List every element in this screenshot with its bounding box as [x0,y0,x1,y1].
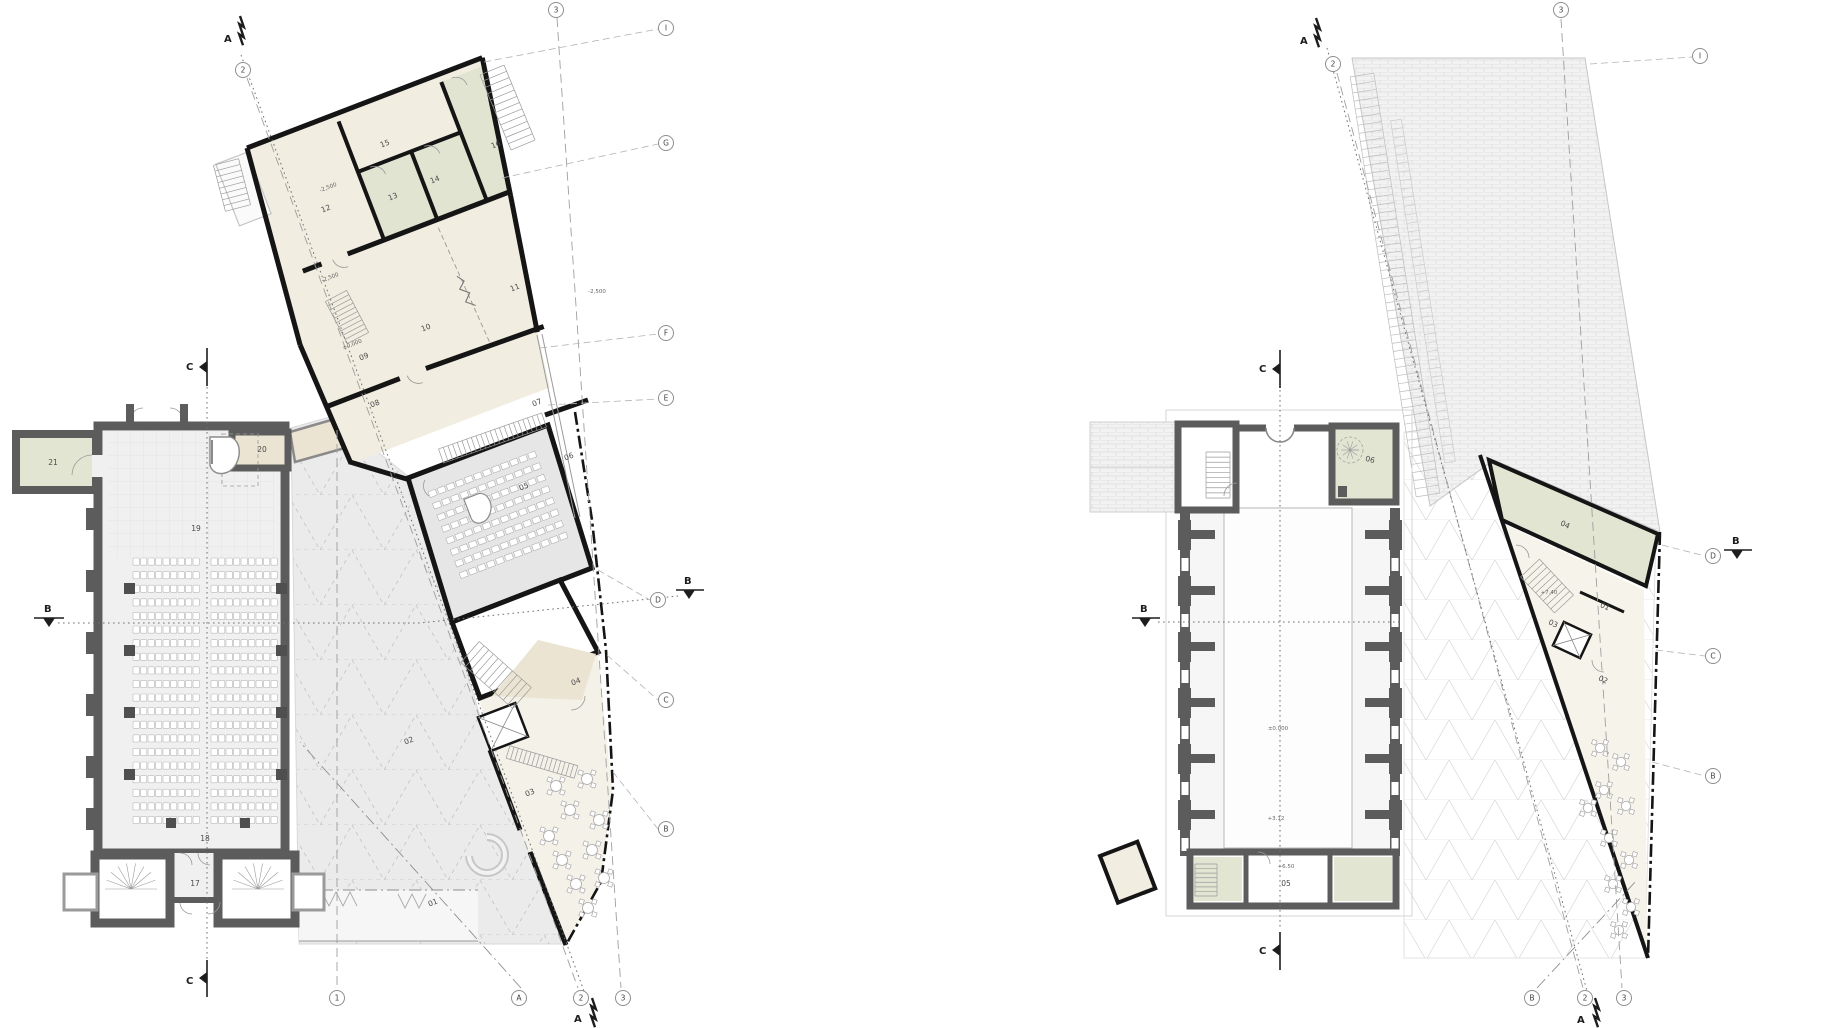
svg-text:D: D [655,596,661,605]
svg-text:C: C [1710,652,1715,661]
room-label: 19 [191,524,201,533]
svg-text:E: E [664,394,669,403]
svg-text:2: 2 [1583,994,1588,1003]
section-c-marker-bottom: C [1259,932,1280,970]
section-b-marker-right: B [676,576,704,599]
svg-text:B: B [1529,994,1534,1003]
svg-text:F: F [664,329,668,338]
svg-text:C: C [1259,946,1266,957]
room-label: 17 [190,879,200,888]
svg-text:3: 3 [621,994,626,1003]
svg-text:B: B [1140,604,1148,615]
svg-text:2: 2 [579,994,584,1003]
svg-text:I: I [665,24,667,33]
svg-text:B: B [44,604,52,615]
svg-text:G: G [663,139,669,148]
nave-void [1224,508,1352,848]
svg-text:C: C [186,362,193,373]
svg-text:C: C [1259,364,1266,375]
svg-text:C: C [186,976,193,987]
svg-text:B: B [684,576,692,587]
new-building-upper-block [214,58,601,471]
svg-text:2: 2 [1331,60,1336,69]
section-a-arrow-icon [1310,18,1325,47]
church-ground-floor [16,404,324,923]
svg-text:C: C [663,696,668,705]
level-annotation: +3.12 [1268,816,1285,822]
svg-text:B: B [1732,536,1740,547]
section-a-label: A [1300,36,1308,47]
level-annotation: -2,500 [588,289,606,295]
section-b-marker-left: B [34,604,64,627]
tower-porch [64,874,97,910]
ground-floor-plan: A 2 3 1 A 2 3 A I G F E D C B B B C [16,3,1155,1028]
room-17-narthex [170,853,218,902]
section-b-marker-left: B [1132,604,1160,627]
upper-floor-roof-plan: A 2 3 I D C B B B C C B 2 A 3 [1090,3,1752,1028]
section-a-label: A [574,1014,582,1025]
section-a-arrow-icon [234,16,249,45]
section-a-arrow-icon [586,998,601,1027]
room-label: 06 [563,451,575,463]
svg-text:B: B [1710,772,1715,781]
room-label: 05 [1281,879,1291,888]
tower-porch [293,874,324,910]
section-a-label: A [1577,1015,1585,1026]
level-annotation: +7.40 [1541,590,1558,596]
section-c-marker-bottom: C [186,960,207,997]
level-annotation: +6.50 [1278,864,1295,870]
section-b-marker-right: B [1724,536,1752,559]
svg-text:3: 3 [554,6,559,15]
svg-text:3: 3 [1622,994,1627,1003]
svg-text:I: I [1699,52,1701,61]
section-a-label: A [224,34,232,45]
svg-text:2: 2 [241,66,246,75]
architectural-drawing-sheet: A 2 3 1 A 2 3 A I G F E D C B B B C [0,0,1830,1028]
room-06 [1100,842,1155,903]
room-label: 07 [531,397,543,409]
room-label: 21 [48,458,58,467]
room-01-outdoor-area [299,890,478,941]
room-label: 18 [200,834,210,843]
level-annotation: ±0.000 [1268,726,1289,732]
section-c-marker-top: C [1259,350,1280,388]
svg-text:D: D [1710,552,1716,561]
svg-text:3: 3 [1559,6,1564,15]
section-c-marker-top: C [186,348,207,386]
floor-plans-svg: A 2 3 1 A 2 3 A I G F E D C B B B C [0,0,1830,1028]
room-label: 20 [257,445,267,454]
svg-text:A: A [516,994,522,1003]
svg-text:1: 1 [335,994,340,1003]
svg-text:B: B [663,825,668,834]
